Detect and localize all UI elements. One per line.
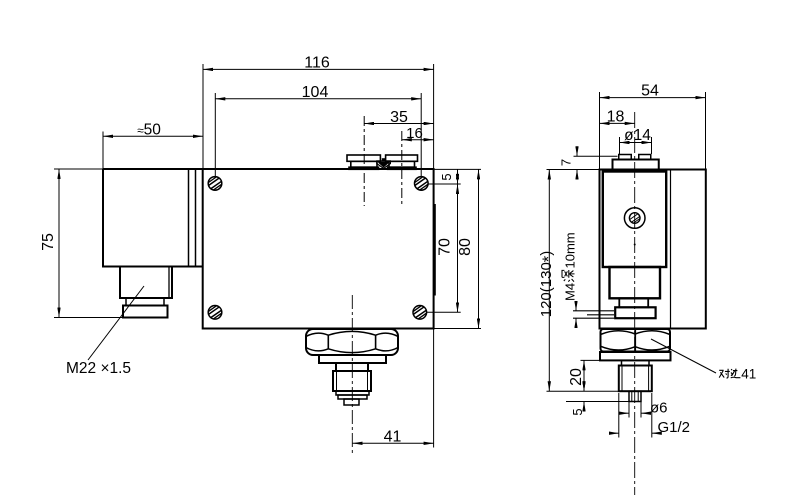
svg-text:5: 5 [570,408,585,415]
svg-text:120(130*): 120(130*) [538,251,558,317]
svg-text:104: 104 [302,84,329,101]
svg-text:M22 ×1.5: M22 ×1.5 [66,360,131,377]
svg-text:M4: M4 [563,283,578,301]
svg-text:41: 41 [384,428,402,445]
svg-text:10mm: 10mm [563,232,578,268]
svg-text:5: 5 [439,173,454,180]
svg-text:35: 35 [390,109,408,126]
svg-text:ø6: ø6 [650,400,668,417]
svg-text:≈50: ≈50 [137,121,161,138]
svg-text:116: 116 [304,55,330,72]
svg-text:41: 41 [741,367,756,382]
svg-text:75: 75 [40,233,57,251]
svg-text:ø14: ø14 [624,127,651,144]
svg-text:G1/2: G1/2 [658,419,691,436]
svg-text:70: 70 [437,238,454,256]
svg-text:7: 7 [559,159,574,166]
svg-text:80: 80 [457,238,474,256]
svg-text:54: 54 [641,83,659,100]
svg-text:16: 16 [406,125,423,142]
svg-text:18: 18 [607,108,625,125]
svg-text:20: 20 [568,368,585,386]
